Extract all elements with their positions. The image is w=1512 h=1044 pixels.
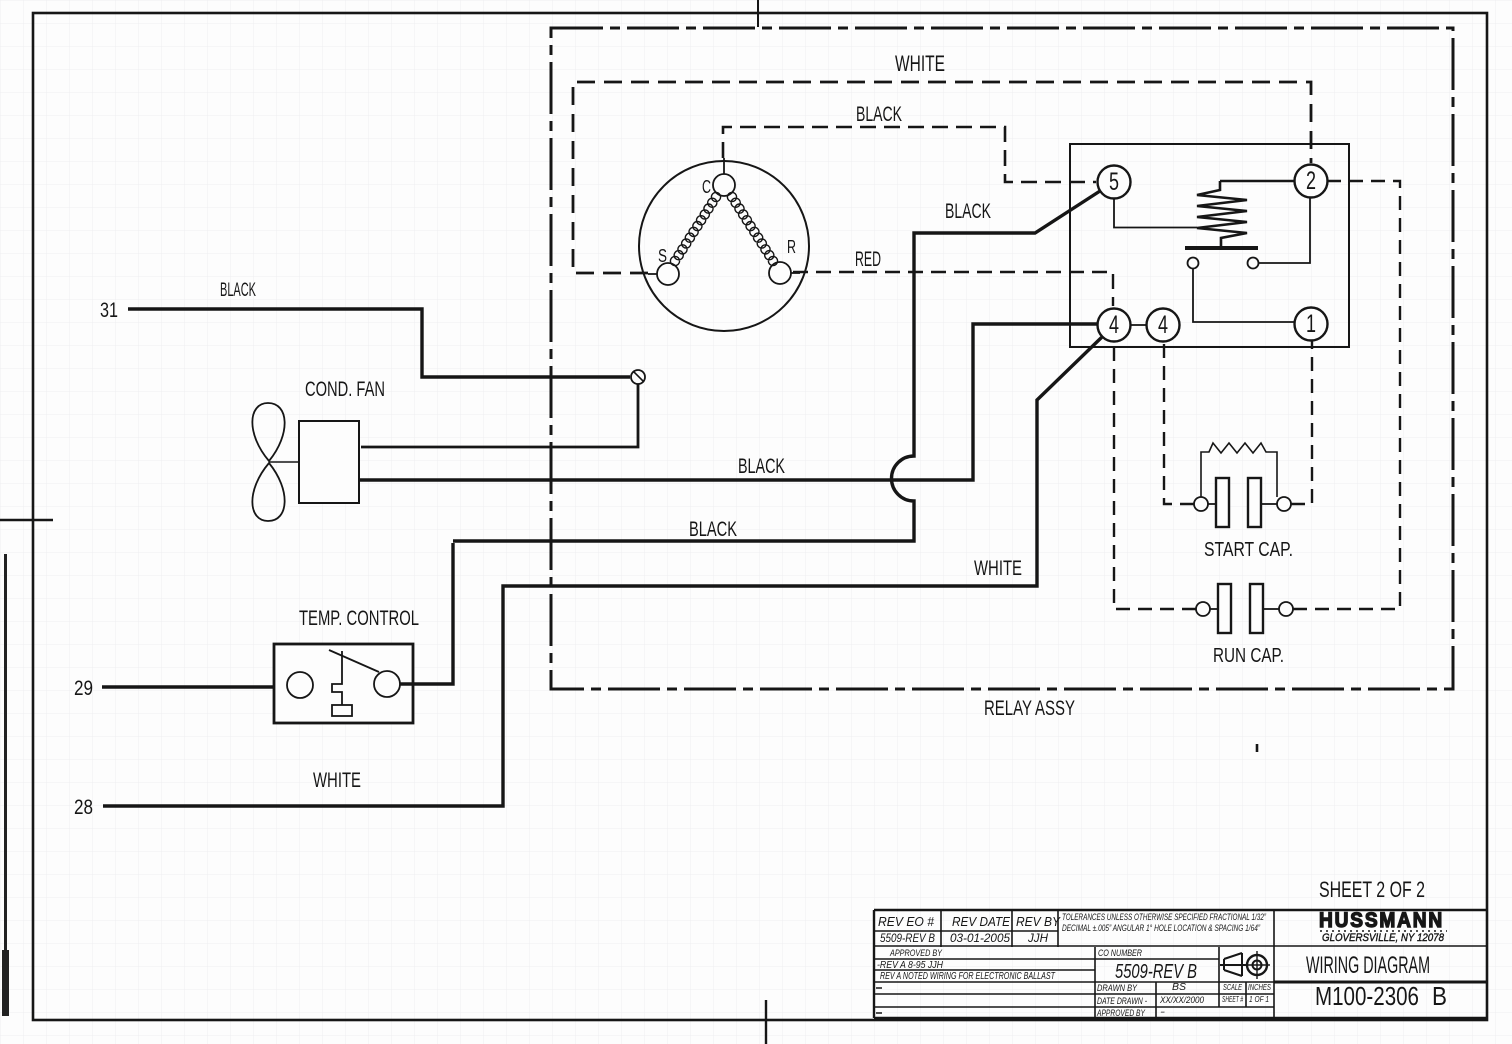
svg-text:2: 2	[1306, 167, 1316, 195]
svg-text:B: B	[1432, 981, 1447, 1011]
svg-text:DRAWN BY: DRAWN BY	[1097, 983, 1138, 993]
svg-text:START CAP.: START CAP.	[1204, 539, 1293, 561]
svg-text:SCALE: SCALE	[1223, 983, 1242, 992]
svg-text:RED: RED	[855, 248, 881, 271]
svg-text:BS: BS	[1172, 982, 1186, 993]
svg-text:SHEET #: SHEET #	[1222, 995, 1243, 1004]
svg-text:TEMP. CONTROL: TEMP. CONTROL	[299, 607, 419, 630]
svg-text:DATE DRAWN -: DATE DRAWN -	[1097, 996, 1147, 1006]
svg-text:JJH: JJH	[1027, 931, 1048, 945]
svg-text:BLACK: BLACK	[856, 103, 902, 126]
svg-text:WIRING DIAGRAM: WIRING DIAGRAM	[1306, 952, 1430, 979]
svg-text:-REV A 8-95 JJH: -REV A 8-95 JJH	[877, 960, 944, 971]
svg-text:CO NUMBER: CO NUMBER	[1098, 948, 1142, 958]
svg-text:REV EO #: REV EO #	[878, 914, 935, 929]
svg-text:REV DATE: REV DATE	[952, 914, 1010, 929]
svg-text:03-01-2005: 03-01-2005	[950, 931, 1010, 945]
svg-text:REV A NOTED WIRING FOR ELECTRO: REV A NOTED WIRING FOR ELECTRONIC BALLAS…	[880, 971, 1056, 982]
svg-text:RUN CAP.: RUN CAP.	[1213, 645, 1284, 667]
svg-text:4: 4	[1158, 311, 1168, 339]
svg-text:WHITE: WHITE	[313, 769, 361, 792]
svg-text:5509-REV B: 5509-REV B	[1115, 961, 1197, 983]
svg-text:COND. FAN: COND. FAN	[305, 378, 385, 401]
svg-text:R: R	[787, 237, 796, 257]
svg-text:BLACK: BLACK	[689, 518, 737, 541]
svg-text:C: C	[702, 177, 711, 197]
svg-text:DECIMAL ±.005” ANGULAR 1° HOLE: DECIMAL ±.005” ANGULAR 1° HOLE LOCATION …	[1062, 923, 1261, 933]
svg-text:28: 28	[74, 796, 93, 819]
svg-text:APPROVED BY: APPROVED BY	[1096, 1008, 1145, 1018]
svg-text:BLACK: BLACK	[738, 455, 785, 478]
svg-text:HUSSMANN: HUSSMANN	[1319, 909, 1444, 932]
svg-text:31: 31	[100, 299, 118, 322]
svg-text:RELAY ASSY: RELAY ASSY	[984, 697, 1075, 720]
svg-text:5509-REV B: 5509-REV B	[880, 931, 935, 945]
svg-text:29: 29	[74, 677, 93, 700]
svg-text:TOLERANCES UNLESS OTHERWISE SP: TOLERANCES UNLESS OTHERWISE SPECIFIED FR…	[1062, 912, 1267, 922]
svg-text:BLACK: BLACK	[945, 200, 991, 223]
svg-text:APPROVED BY: APPROVED BY	[889, 948, 943, 958]
svg-text:WHITE: WHITE	[895, 51, 945, 76]
svg-text:GLOVERSVILLE, NY 12078: GLOVERSVILLE, NY 12078	[1322, 932, 1445, 944]
svg-text:M100-2306: M100-2306	[1315, 981, 1419, 1011]
svg-text:1 OF 1: 1 OF 1	[1249, 995, 1269, 1004]
svg-text:XX/XX/2000: XX/XX/2000	[1159, 995, 1204, 1005]
svg-text:BLACK: BLACK	[220, 280, 256, 301]
svg-text:S: S	[658, 246, 667, 266]
svg-text:SHEET 2 OF 2: SHEET 2 OF 2	[1319, 877, 1425, 902]
svg-text:4: 4	[1109, 311, 1119, 339]
svg-text:WHITE: WHITE	[974, 557, 1022, 580]
svg-text:5: 5	[1109, 168, 1119, 196]
svg-text:REV BY: REV BY	[1016, 914, 1061, 929]
svg-text:1: 1	[1306, 310, 1316, 338]
svg-text:INCHES: INCHES	[1248, 983, 1271, 992]
